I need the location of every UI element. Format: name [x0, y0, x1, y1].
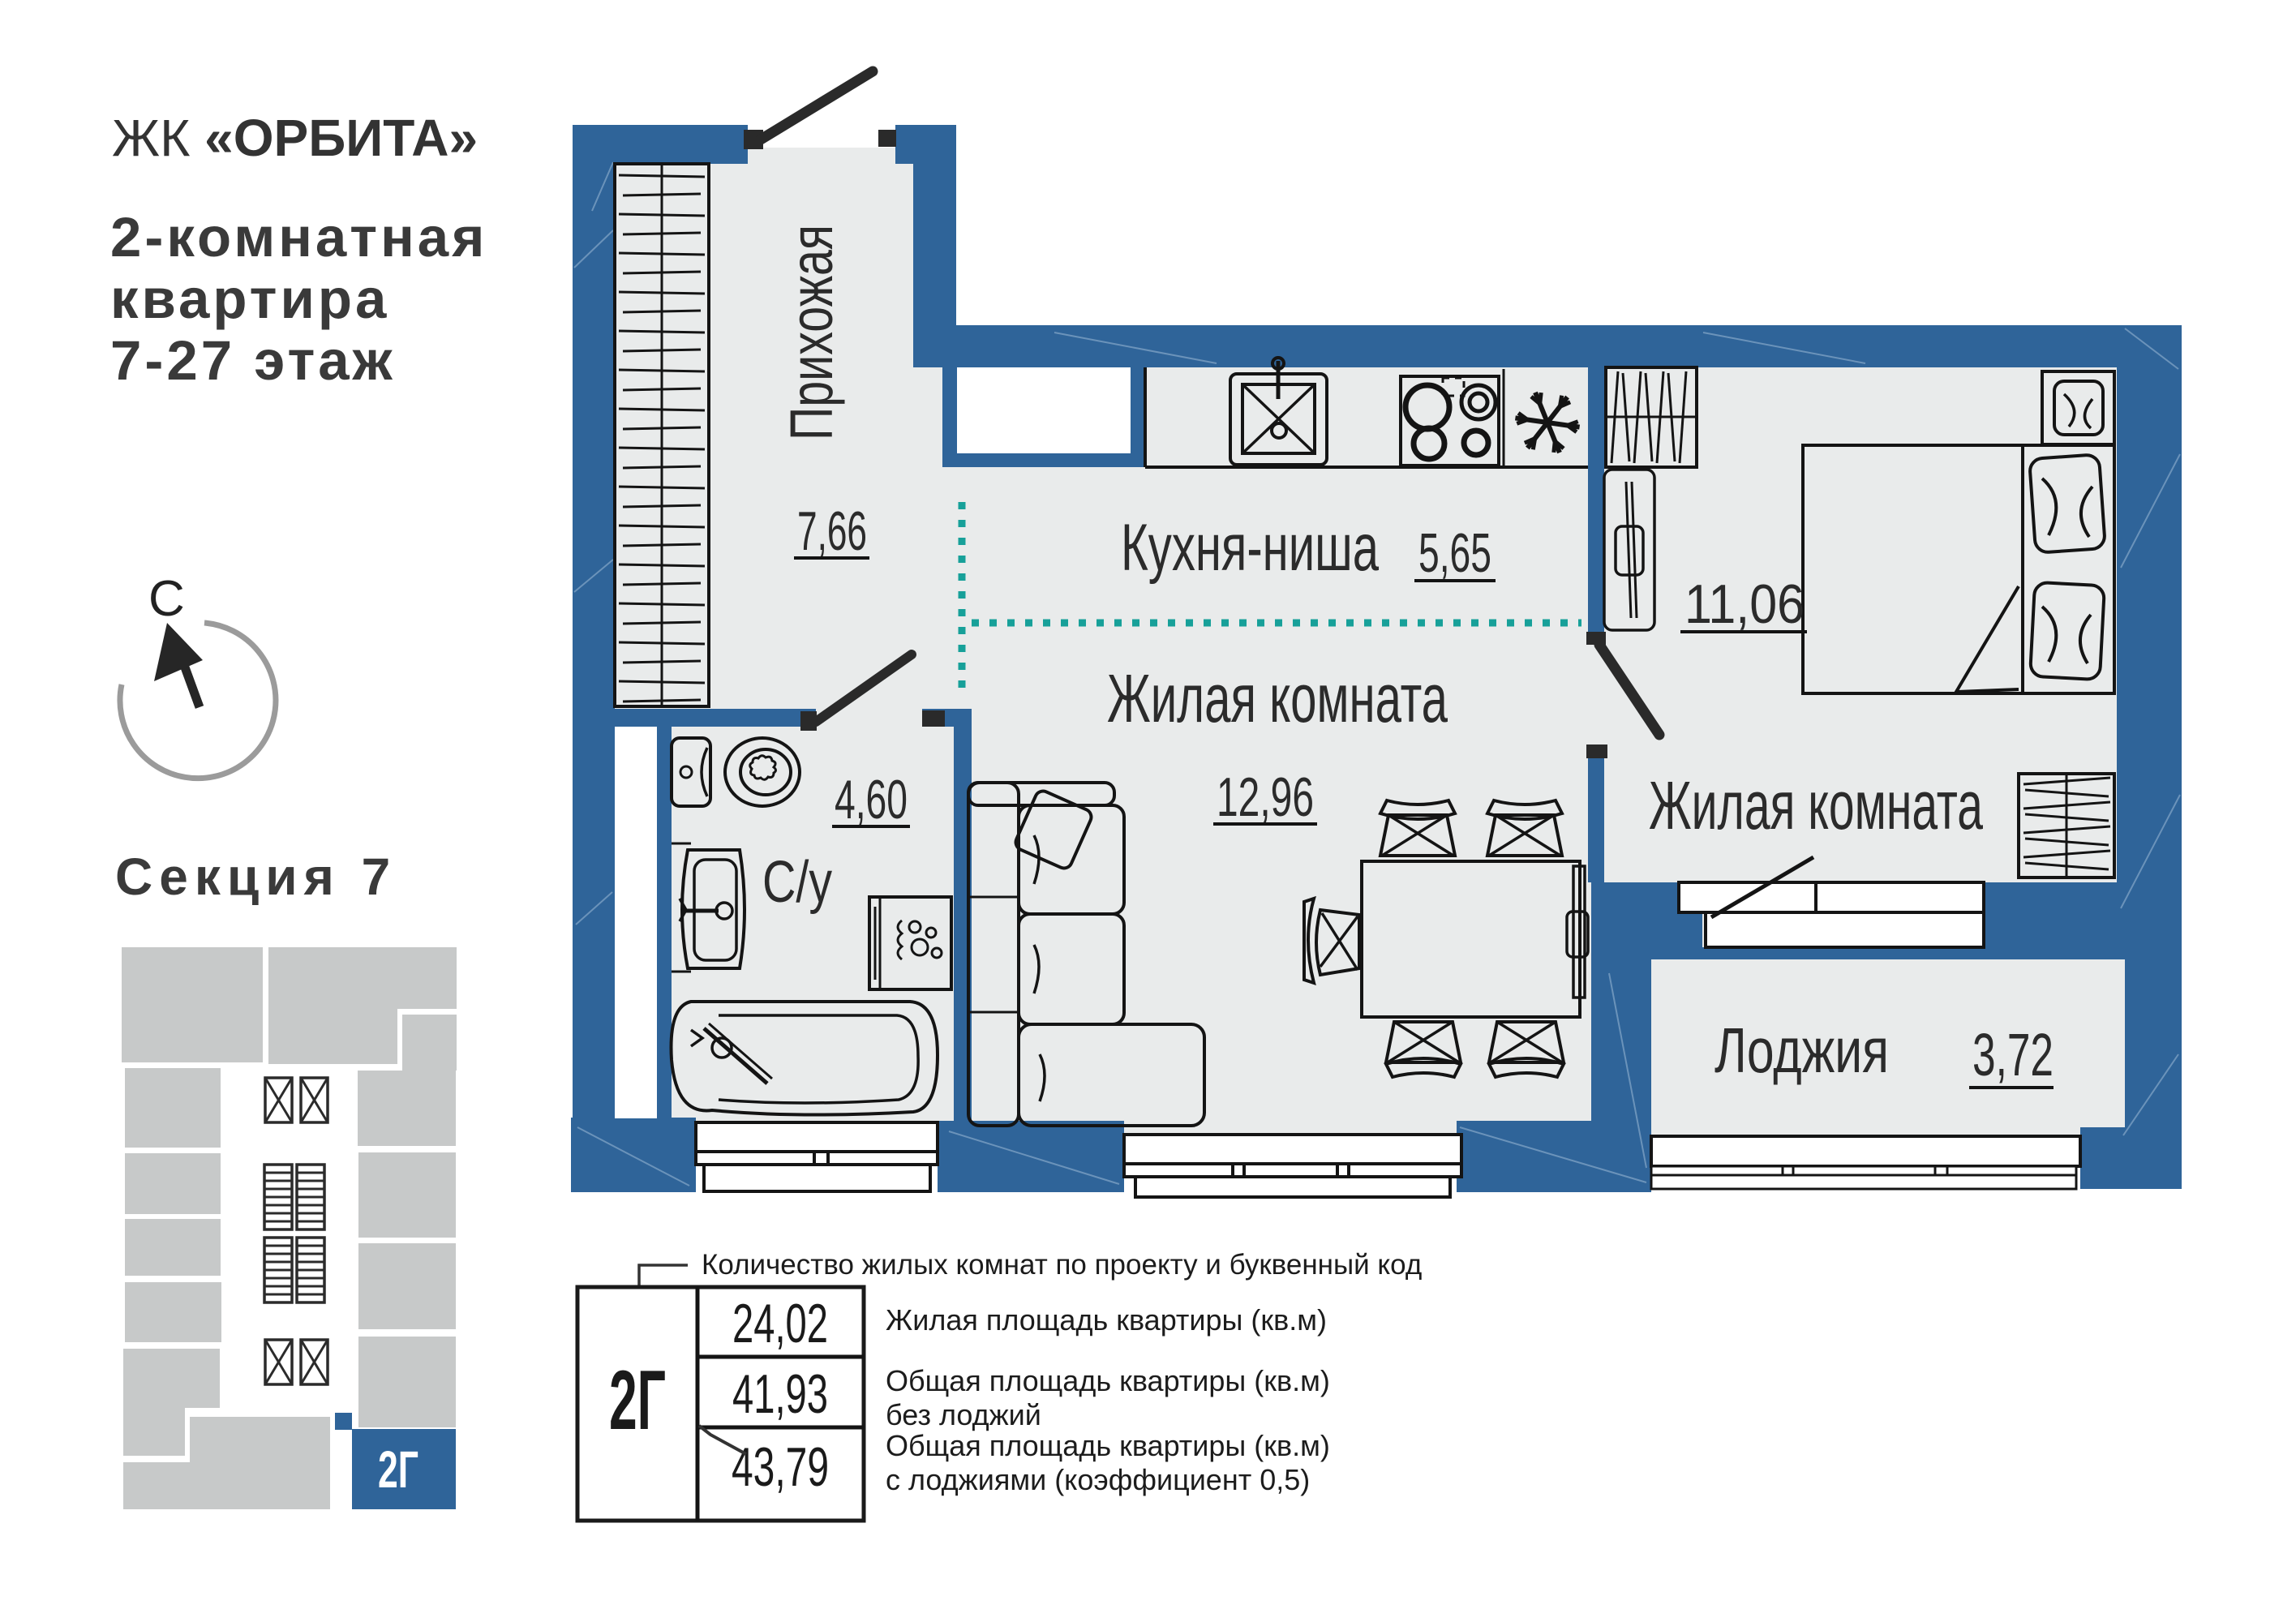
- svg-text:без лоджий: без лоджий: [886, 1398, 1041, 1431]
- svg-text:2-комнатная: 2-комнатная: [110, 206, 487, 268]
- svg-text:12,96: 12,96: [1217, 766, 1314, 828]
- svg-text:7-27 этаж: 7-27 этаж: [110, 329, 396, 392]
- svg-text:Лоджия: Лоджия: [1714, 1015, 1889, 1086]
- svg-text:Жилая комната: Жилая комната: [1107, 660, 1448, 736]
- svg-text:24,02: 24,02: [732, 1293, 828, 1354]
- svg-text:С: С: [148, 571, 185, 627]
- svg-text:41,93: 41,93: [732, 1363, 828, 1425]
- svg-text:Секция 7: Секция 7: [115, 847, 397, 906]
- svg-text:11,06: 11,06: [1684, 573, 1805, 635]
- svg-text:5,65: 5,65: [1418, 522, 1491, 584]
- svg-text:Прихожая: Прихожая: [778, 225, 845, 440]
- svg-text:ЖК «ОРБИТА»: ЖК «ОРБИТА»: [112, 109, 478, 167]
- svg-text:Кухня-ниша: Кухня-ниша: [1121, 511, 1379, 585]
- svg-text:3,72: 3,72: [1972, 1021, 2054, 1088]
- svg-text:Жилая площадь квартиры (кв.м): Жилая площадь квартиры (кв.м): [886, 1303, 1327, 1337]
- svg-text:Жилая комната: Жилая комната: [1649, 767, 1983, 843]
- svg-text:4,60: 4,60: [835, 769, 908, 830]
- svg-text:Количество жилых комнат по про: Количество жилых комнат по проекту и бук…: [702, 1249, 1422, 1281]
- svg-text:2Г: 2Г: [378, 1440, 418, 1499]
- svg-text:7,66: 7,66: [797, 500, 867, 562]
- svg-text:43,79: 43,79: [732, 1436, 829, 1498]
- svg-text:Общая площадь квартиры (кв.м): Общая площадь квартиры (кв.м): [886, 1364, 1330, 1397]
- svg-text:квартира: квартира: [110, 268, 389, 330]
- svg-text:2Г: 2Г: [609, 1354, 666, 1448]
- svg-text:Общая площадь квартиры (кв.м): Общая площадь квартиры (кв.м): [886, 1429, 1330, 1462]
- svg-text:С/у: С/у: [762, 850, 832, 915]
- svg-text:с лоджиями (коэффициент 0,5): с лоджиями (коэффициент 0,5): [886, 1463, 1310, 1496]
